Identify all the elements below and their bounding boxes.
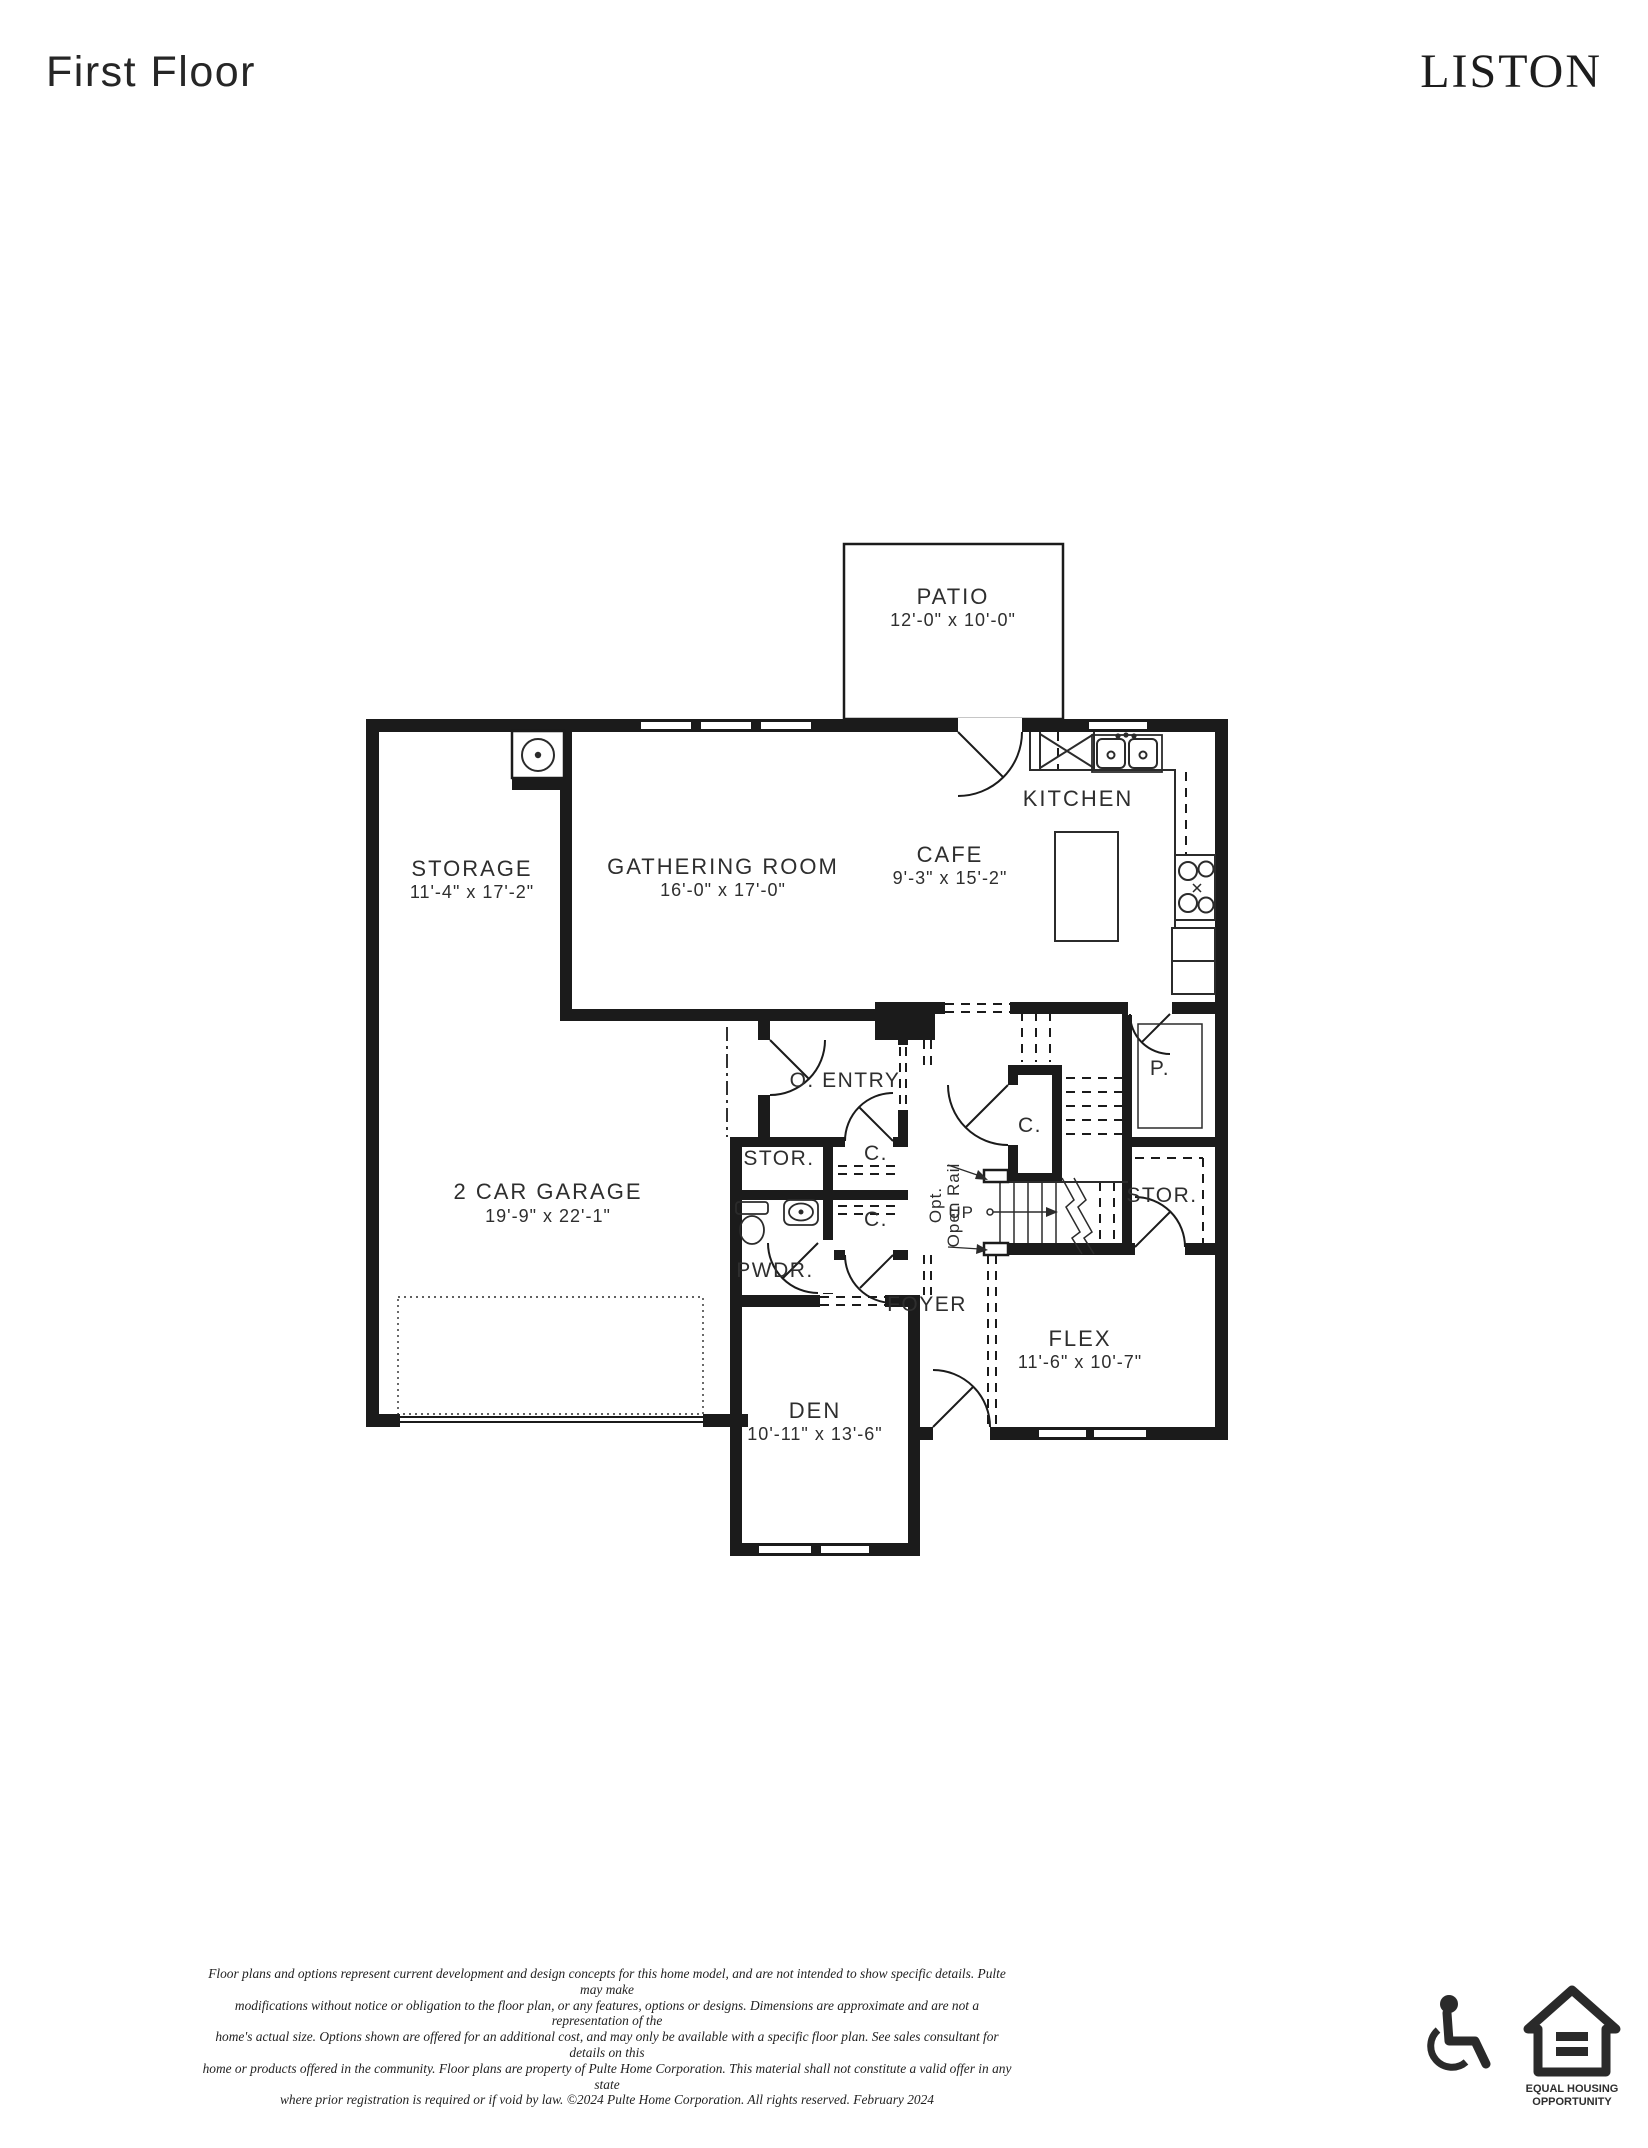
cafe-dims: 9'-3" x 15'-2" bbox=[893, 868, 1008, 888]
foyer-label: FOYER bbox=[887, 1293, 967, 1316]
newel-post-bottom bbox=[984, 1243, 1008, 1255]
equal-housing-text-2: OPPORTUNITY bbox=[1532, 2096, 1612, 2108]
open-rail-label-1: Opt. bbox=[926, 1187, 945, 1223]
equal-housing-text-1: EQUAL HOUSING bbox=[1526, 2083, 1619, 2095]
patio-dims: 12'-0" x 10'-0" bbox=[890, 610, 1016, 630]
floor-plan-page: First Floor LISTON bbox=[0, 0, 1648, 2148]
den-label: DEN bbox=[789, 1398, 841, 1423]
disclaimer: Floor plans and options represent curren… bbox=[198, 1966, 1016, 2108]
kitchen-label: KITCHEN bbox=[1023, 786, 1134, 811]
disclaimer-line: home or products offered in the communit… bbox=[198, 2061, 1016, 2093]
disclaimer-line: home's actual size. Options shown are of… bbox=[198, 2029, 1016, 2061]
stair-break-line bbox=[1062, 1178, 1082, 1254]
newel-post-top bbox=[984, 1170, 1008, 1182]
disclaimer-line: Floor plans and options represent curren… bbox=[198, 1966, 1016, 1998]
owners-entry-label: O. ENTRY bbox=[790, 1069, 901, 1092]
disclaimer-line: modifications without notice or obligati… bbox=[198, 1998, 1016, 2030]
dishwasher-x-icon bbox=[1040, 734, 1094, 768]
sink-basin-right bbox=[1129, 739, 1157, 768]
closet-stair-label: C. bbox=[1018, 1114, 1042, 1137]
cafe-label: CAFE bbox=[917, 842, 984, 867]
gathering-dims: 16'-0" x 17'-0" bbox=[660, 880, 786, 900]
storage-label: STORAGE bbox=[411, 856, 532, 881]
den-dims: 10'-11" x 13'-6" bbox=[747, 1424, 882, 1444]
toilet-icon bbox=[740, 1216, 764, 1244]
floor-plan-drawing: PATIO 12'-0" x 10'-0" STORAGE 11'-4" x 1… bbox=[0, 0, 1648, 2148]
bathroom-fixtures bbox=[736, 1200, 818, 1244]
open-rail-label-2: Open Rail bbox=[944, 1163, 963, 1248]
garage-details bbox=[398, 1297, 703, 1414]
closet-a-label: C. bbox=[864, 1142, 888, 1165]
powder-label: PWDR. bbox=[736, 1259, 814, 1282]
flex-label: FLEX bbox=[1048, 1326, 1111, 1351]
stor-right-label: STOR. bbox=[1126, 1184, 1197, 1207]
equal-housing-icon: EQUAL HOUSING OPPORTUNITY bbox=[1526, 1990, 1619, 2108]
kitchen-island bbox=[1055, 832, 1118, 941]
disclaimer-line: where prior registration is required or … bbox=[198, 2092, 1016, 2108]
stor-left-label: STOR. bbox=[743, 1147, 814, 1170]
pantry-label: P. bbox=[1150, 1057, 1170, 1080]
garage-label: 2 CAR GARAGE bbox=[453, 1179, 642, 1204]
garage-dims: 19'-9" x 22'-1" bbox=[485, 1206, 611, 1226]
patio-outline bbox=[844, 544, 1063, 719]
flex-dims: 11'-6" x 10'-7" bbox=[1018, 1352, 1142, 1372]
sink-basin-left bbox=[1097, 739, 1125, 768]
storage-dims: 11'-4" x 17'-2" bbox=[410, 882, 534, 902]
gathering-label: GATHERING ROOM bbox=[607, 854, 839, 879]
patio-label: PATIO bbox=[917, 584, 990, 609]
closet-b-label: C. bbox=[864, 1208, 888, 1231]
accessibility-icon bbox=[1431, 1995, 1486, 2067]
water-heater-icon bbox=[512, 731, 564, 778]
